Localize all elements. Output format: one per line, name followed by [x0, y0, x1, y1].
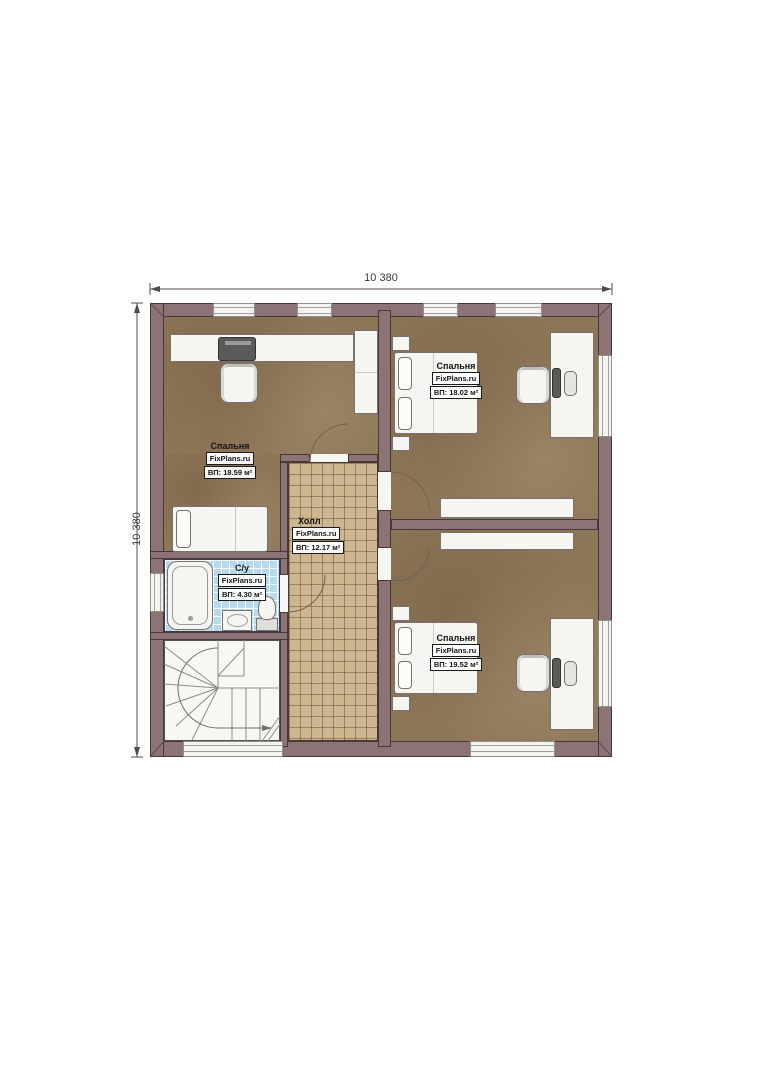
brand-tag: FixPlans.ru — [432, 372, 480, 385]
inner-wall-center-vertical-upper — [378, 310, 391, 472]
inner-wall-center-vertical-lower — [378, 580, 391, 747]
pillow — [176, 510, 191, 548]
desk-bedroom-1 — [170, 334, 354, 362]
cabinet-bedroom-3 — [440, 532, 574, 550]
window-top-2 — [297, 303, 332, 317]
brand-tag: FixPlans.ru — [292, 527, 340, 540]
window-bottom-1 — [183, 741, 283, 757]
room-name: Спальня — [437, 361, 476, 371]
room-name: Спальня — [437, 633, 476, 643]
nightstand — [392, 606, 410, 621]
office-chair-bedroom-3 — [516, 654, 550, 692]
room-name: Холл — [298, 516, 321, 526]
room-label-bedroom-1: Спальня FixPlans.ru ВП: 18.59 м² — [188, 441, 272, 479]
room-label-bathroom: С/у FixPlans.ru ВП: 4.30 м² — [208, 563, 276, 601]
area-tag: ВП: 19.52 м² — [430, 658, 482, 671]
room-name: С/у — [235, 563, 249, 573]
monitor-bedroom-2 — [552, 368, 561, 398]
monitor-bedroom-3 — [552, 658, 561, 688]
dimension-line-top — [150, 283, 612, 295]
dimension-height-label: 10 380 — [131, 489, 143, 569]
inner-wall-bathroom-top — [150, 551, 288, 559]
dimension-width-label: 10 380 — [341, 272, 421, 284]
window-bottom-2 — [470, 741, 555, 757]
inner-wall-hall-top-left — [280, 454, 310, 462]
window-top-1 — [213, 303, 255, 317]
nightstand — [392, 436, 410, 451]
area-tag: ВП: 18.59 м² — [204, 466, 256, 479]
window-right-2 — [598, 620, 612, 707]
cabinet-bedroom-2 — [440, 498, 574, 518]
window-top-3 — [423, 303, 458, 317]
pillow — [398, 357, 412, 390]
wardrobe-divider — [355, 372, 377, 373]
stairwell-floor — [164, 640, 280, 741]
room-label-hall: Холл FixPlans.ru ВП: 12.17 м² — [292, 516, 374, 554]
floor-plan: Спальня FixPlans.ru ВП: 18.59 м² Спальня… — [0, 0, 763, 1080]
area-tag: ВП: 4.30 м² — [218, 588, 266, 601]
room-label-bedroom-2: Спальня FixPlans.ru ВП: 18.02 м² — [412, 361, 500, 399]
brand-tag: FixPlans.ru — [218, 574, 266, 587]
inner-wall-center-vertical-middle — [378, 510, 391, 548]
office-chair-bedroom-2 — [516, 366, 550, 404]
printer — [218, 337, 256, 361]
printer-tray — [225, 341, 251, 345]
blanket-edge — [235, 507, 236, 551]
room-name: Спальня — [211, 441, 250, 451]
inner-wall-bedrooms-right — [391, 519, 598, 530]
pillow — [398, 661, 412, 689]
area-tag: ВП: 18.02 м² — [430, 386, 482, 399]
bed-bedroom-1 — [172, 506, 268, 552]
pillow — [398, 397, 412, 430]
window-left-1 — [150, 573, 164, 612]
nightstand — [392, 696, 410, 711]
computer-bedroom-2 — [564, 371, 577, 396]
sink-basin — [227, 614, 248, 627]
pillow — [398, 627, 412, 655]
nightstand — [392, 336, 410, 351]
inner-wall-hall-top-right — [348, 454, 378, 462]
area-tag: ВП: 12.17 м² — [292, 541, 344, 554]
inner-wall-bathroom-bottom — [150, 632, 288, 640]
brand-tag: FixPlans.ru — [206, 452, 254, 465]
bathtub — [167, 561, 213, 630]
room-label-bedroom-3: Спальня FixPlans.ru ВП: 19.52 м² — [412, 633, 500, 671]
outer-wall-left — [150, 303, 164, 757]
hall-floor — [288, 462, 378, 741]
window-right-1 — [598, 355, 612, 437]
office-chair-bedroom-1 — [220, 363, 258, 403]
window-top-4 — [495, 303, 542, 317]
computer-bedroom-3 — [564, 661, 577, 686]
sink — [222, 610, 252, 631]
wardrobe-bedroom-1 — [354, 330, 378, 414]
bathtub-drain — [188, 616, 193, 621]
brand-tag: FixPlans.ru — [432, 644, 480, 657]
